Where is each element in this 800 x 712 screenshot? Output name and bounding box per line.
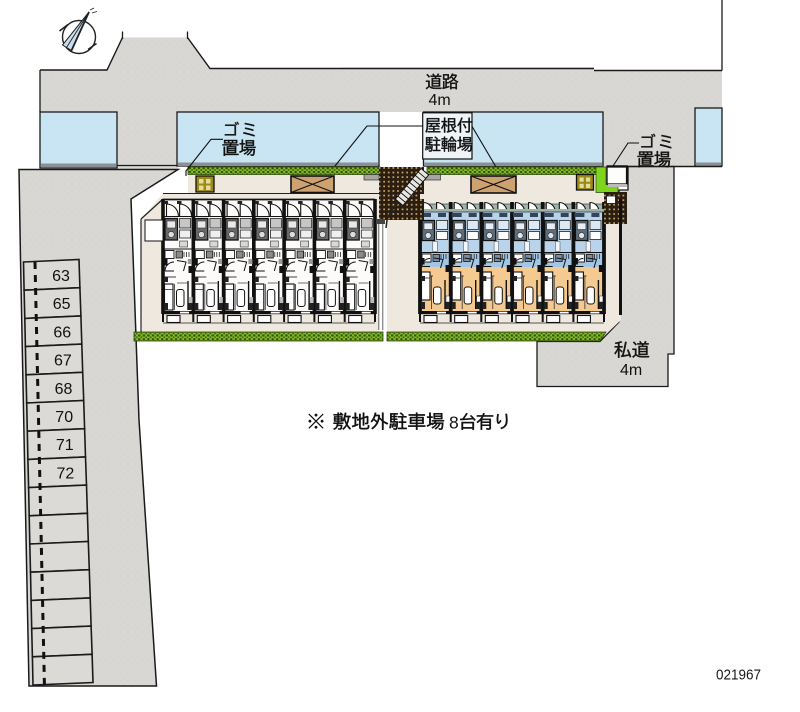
svg-text:68: 68 [55,381,73,398]
svg-text:72: 72 [57,465,75,482]
svg-text:67: 67 [54,353,72,370]
svg-text:8: 8 [449,413,459,433]
svg-text:63: 63 [52,268,70,285]
svg-text:71: 71 [56,437,74,454]
svg-text:4m: 4m [620,362,642,379]
svg-text:65: 65 [53,296,71,313]
svg-text:66: 66 [53,324,71,341]
svg-text:4m: 4m [429,92,451,109]
svg-text:021967: 021967 [716,667,761,684]
svg-text:70: 70 [55,409,73,426]
